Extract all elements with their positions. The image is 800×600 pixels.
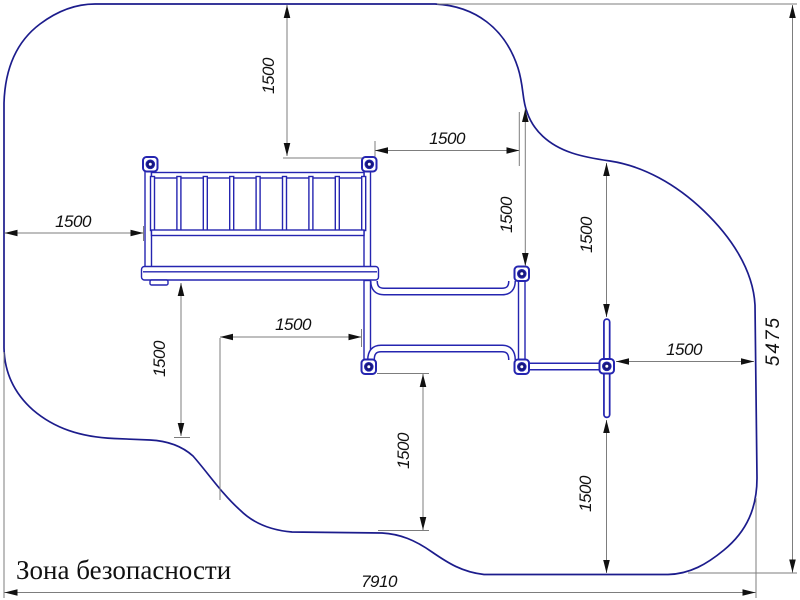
post-cap (515, 267, 530, 282)
play-equipment (142, 157, 615, 415)
bridge-post-right (519, 281, 526, 361)
ladder-rung (203, 177, 207, 231)
ladder-rung (309, 177, 313, 231)
platform-edge (142, 267, 379, 281)
dimension-label: 1500 (150, 340, 169, 377)
post-caps (143, 157, 614, 374)
post-cap (362, 157, 377, 172)
extension-lines (4, 4, 797, 598)
ladder-rung (230, 177, 234, 231)
safety-zone-drawing: 1500 1500 1500 1500 1500 1500 1500 1500 … (0, 0, 800, 600)
ladder-rung (256, 177, 260, 231)
ladder-rail-mid (152, 230, 365, 236)
post-cap (362, 360, 377, 375)
bridge-pipe-top-inner (374, 281, 512, 292)
dimension-lines (5, 5, 793, 593)
platform-foot (150, 280, 168, 285)
dimension-label: 1500 (55, 212, 92, 231)
dimension-label: 1500 (394, 432, 413, 469)
drawing-title: Зона безопасности (16, 555, 231, 585)
post-cap (143, 157, 158, 172)
ladder-rung (335, 177, 339, 231)
drawing-canvas: 1500 1500 1500 1500 1500 1500 1500 1500 … (0, 0, 800, 600)
bridge-post-left (364, 281, 371, 361)
post-cap (515, 360, 530, 375)
ladder-rung (151, 177, 155, 231)
bridge-pipe-bottom-inner (371, 349, 512, 361)
dimension-label: 1500 (666, 340, 703, 359)
ladder-rung (362, 177, 366, 231)
dimension-label: 5475 (763, 316, 784, 366)
dimension-label: 1500 (577, 216, 596, 253)
dimension-label: 7910 (361, 572, 398, 591)
dimension-label: 1500 (275, 315, 312, 334)
ladder-platform (142, 170, 379, 285)
bridge-rails (364, 281, 525, 361)
dimension-label: 1500 (259, 57, 278, 94)
ladder-rung (177, 177, 181, 231)
dimension-labels: 1500 1500 1500 1500 1500 1500 1500 1500 … (55, 57, 784, 591)
ladder-rung (283, 177, 287, 231)
dimension-label: 1500 (429, 129, 466, 148)
dimension-label: 1500 (497, 196, 516, 233)
dimension-label: 1500 (576, 475, 595, 512)
balance-beam (528, 322, 607, 415)
post-cap (600, 359, 615, 374)
